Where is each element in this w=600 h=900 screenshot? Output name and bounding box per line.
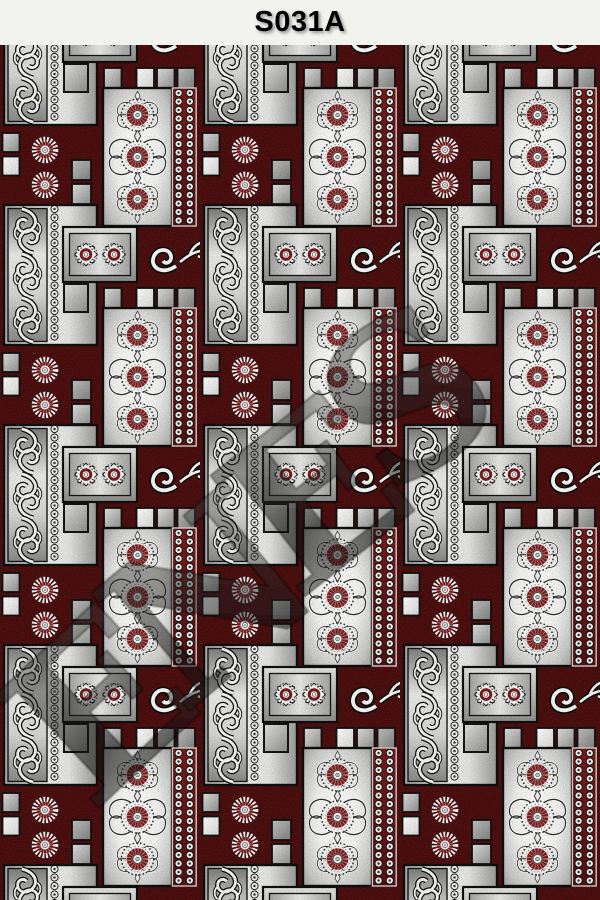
carpet-pattern-image: E N E S [0,45,600,900]
catalog-page: S031A [0,0,600,900]
title-bar: S031A [0,0,600,45]
page-title: S031A [254,6,345,39]
